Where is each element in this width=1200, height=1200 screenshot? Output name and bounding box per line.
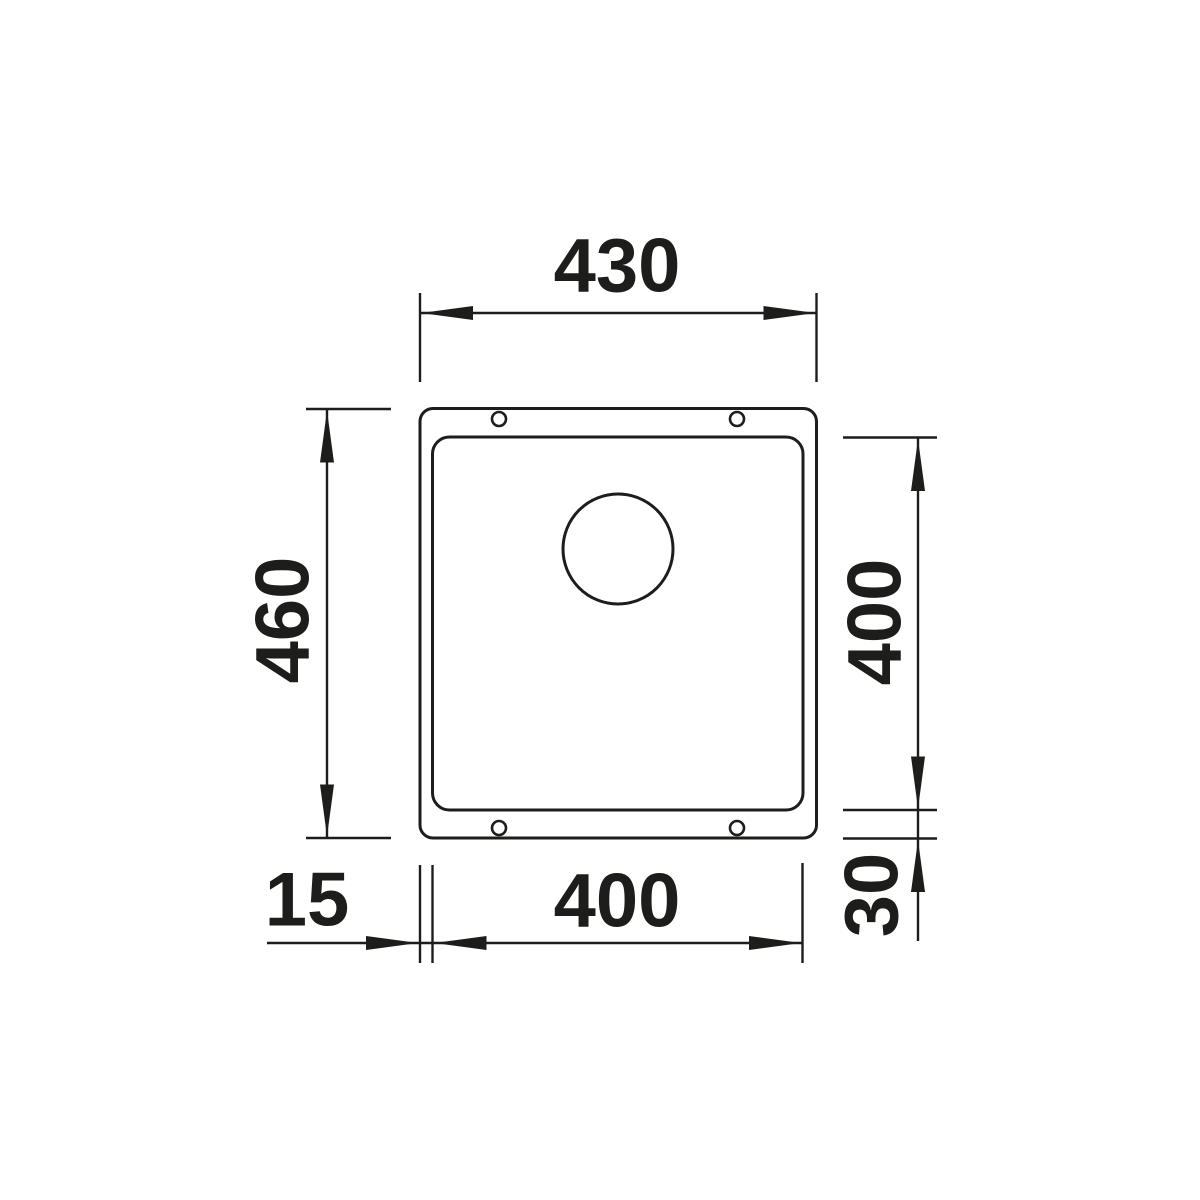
technical-drawing-page: 430 460 400 bbox=[0, 0, 1200, 1200]
arrowhead-left-icon bbox=[435, 936, 487, 950]
dim-label-right-inner-height: 400 bbox=[833, 559, 918, 686]
sink-outline-group bbox=[420, 409, 817, 839]
drawing-root: 430 460 400 bbox=[241, 224, 938, 964]
dim-label-bottom-left-rim: 15 bbox=[265, 858, 350, 943]
arrowhead-right-icon bbox=[764, 306, 816, 320]
dimension-bottom-rim-and-inner-width: 15 400 bbox=[265, 858, 803, 964]
mounting-hole-top-right bbox=[730, 412, 744, 426]
dimension-top-outer-width: 430 bbox=[420, 224, 817, 383]
dimension-left-outer-height: 460 bbox=[241, 409, 392, 838]
dimension-right-bottom-rim: 30 bbox=[830, 810, 938, 941]
arrowhead-up-icon bbox=[911, 439, 925, 491]
arrowhead-down-icon bbox=[911, 757, 925, 809]
dim-label-right-bottom-rim: 30 bbox=[830, 853, 915, 938]
arrowhead-down-icon bbox=[320, 785, 334, 837]
dimension-right-inner-height: 400 bbox=[833, 438, 938, 811]
sink-outer-edge bbox=[420, 409, 817, 839]
drain-hole bbox=[563, 494, 673, 604]
mounting-hole-top-left bbox=[492, 412, 506, 426]
arrowhead-right-icon bbox=[366, 936, 418, 950]
dim-label-bottom-inner-width: 400 bbox=[554, 859, 681, 944]
mounting-hole-bottom-left bbox=[492, 821, 506, 835]
sink-dimension-drawing: 430 460 400 bbox=[0, 0, 1200, 1200]
arrowhead-up-icon bbox=[320, 411, 334, 463]
arrowhead-right-icon bbox=[749, 936, 801, 950]
mounting-hole-bottom-right bbox=[730, 821, 744, 835]
dim-label-top-outer-width: 430 bbox=[554, 224, 681, 309]
arrowhead-left-icon bbox=[421, 306, 473, 320]
dim-label-left-outer-height: 460 bbox=[241, 557, 326, 684]
